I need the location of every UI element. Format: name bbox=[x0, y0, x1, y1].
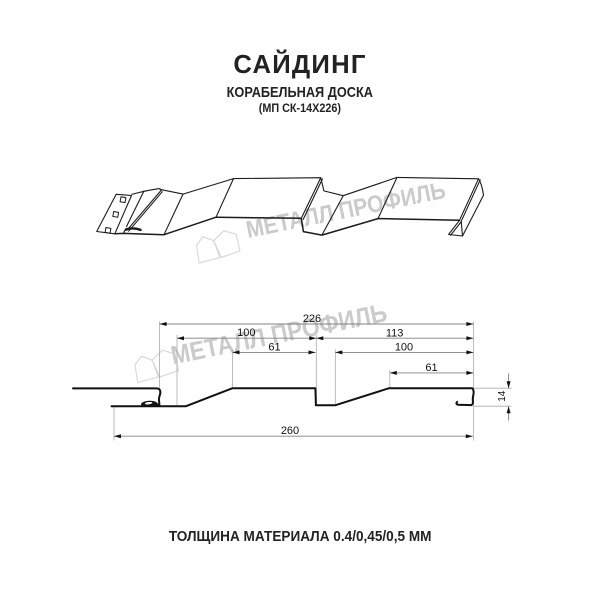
svg-text:260: 260 bbox=[281, 425, 299, 437]
svg-text:100: 100 bbox=[237, 327, 255, 339]
svg-text:14: 14 bbox=[497, 390, 508, 402]
svg-text:61: 61 bbox=[268, 341, 280, 353]
svg-text:МЕТАЛЛ ПРОФИЛЬ: МЕТАЛЛ ПРОФИЛЬ bbox=[169, 299, 390, 371]
svg-text:61: 61 bbox=[425, 362, 437, 374]
svg-text:226: 226 bbox=[303, 313, 321, 325]
svg-text:113: 113 bbox=[386, 327, 404, 339]
svg-text:100: 100 bbox=[395, 341, 413, 353]
svg-text:МЕТАЛЛ ПРОФИЛЬ: МЕТАЛЛ ПРОФИЛЬ bbox=[244, 177, 448, 243]
